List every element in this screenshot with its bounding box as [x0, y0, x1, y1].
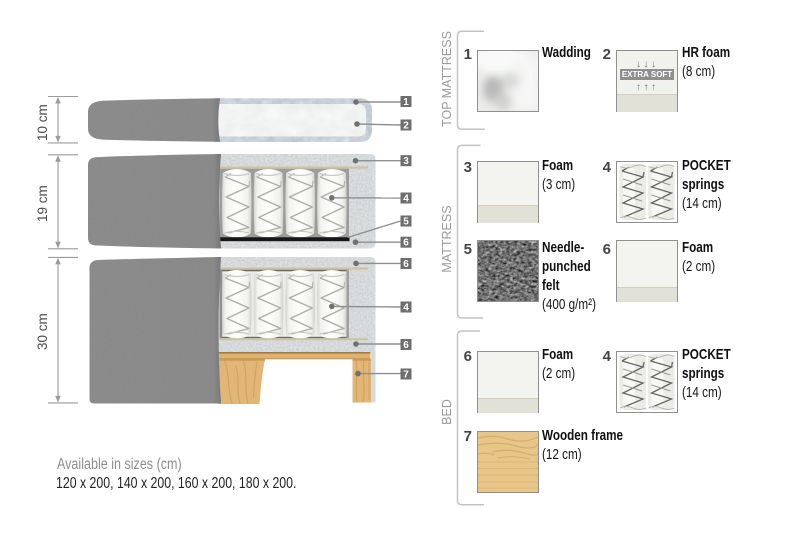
svg-text:10 cm: 10 cm [35, 104, 50, 141]
svg-text:6: 6 [403, 259, 409, 270]
svg-text:5: 5 [403, 217, 409, 228]
svg-text:2: 2 [403, 121, 409, 132]
svg-text:30 cm: 30 cm [35, 313, 50, 350]
svg-text:4: 4 [403, 303, 409, 314]
svg-text:6: 6 [403, 238, 409, 249]
svg-text:6: 6 [403, 340, 409, 351]
svg-text:7: 7 [403, 370, 409, 381]
svg-text:3: 3 [403, 156, 409, 167]
svg-text:4: 4 [403, 194, 409, 205]
svg-text:1: 1 [403, 97, 409, 108]
svg-text:19 cm: 19 cm [35, 185, 50, 222]
